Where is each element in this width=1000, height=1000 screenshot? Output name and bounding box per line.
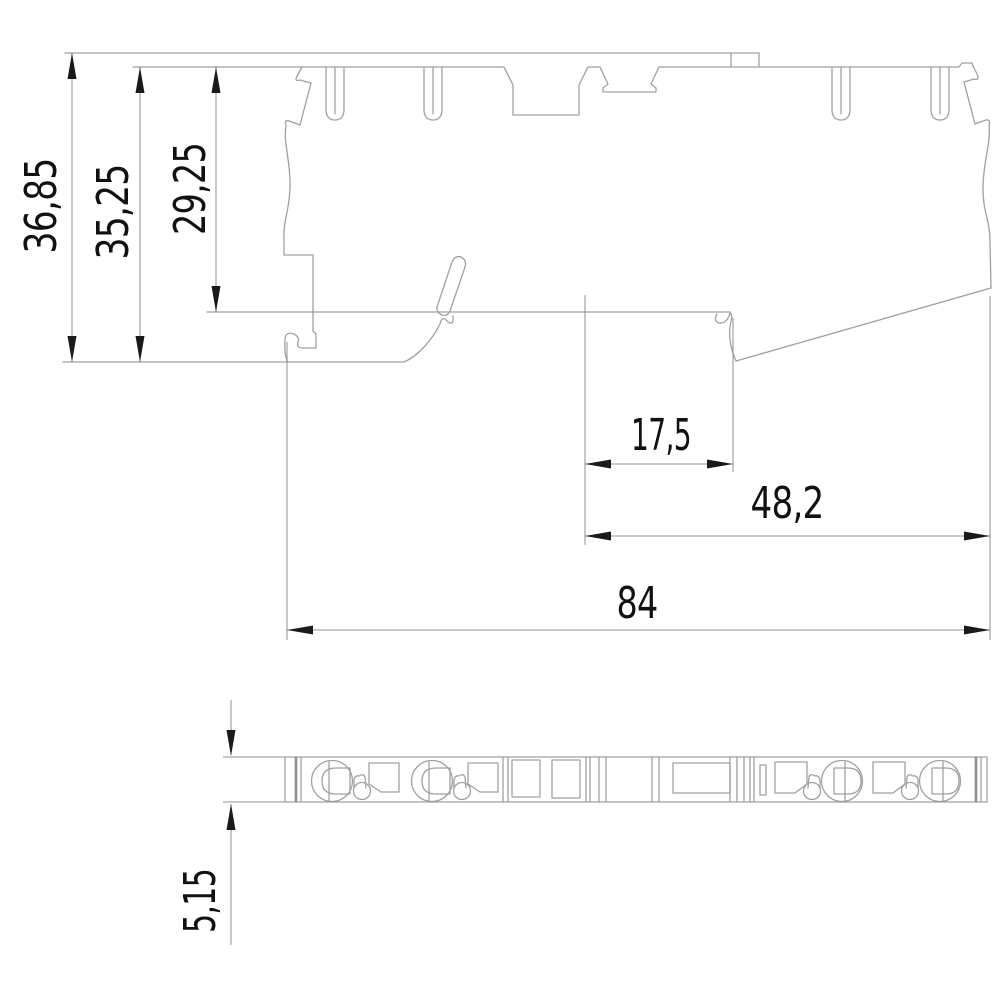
dimension-label-5-15: 5,15 [175, 869, 226, 933]
strip-socket-unit-mirrored [873, 761, 961, 802]
profile-right-edge [964, 66, 991, 288]
dimension-84: 84 [287, 342, 990, 640]
dimension-label-17-5: 17,5 [631, 410, 691, 461]
profile-diagonal-bottom [715, 288, 991, 361]
dimension-label-35-25: 35,25 [88, 165, 139, 260]
strip-socket-unit-mirrored [775, 761, 863, 802]
dimension-17-5: 17,5 [585, 295, 733, 545]
profile-left-edge [284, 67, 316, 362]
dimension-36-85: 36,85 [16, 53, 77, 362]
dimension-label-36-85: 36,85 [16, 159, 67, 254]
strip-outline [285, 757, 987, 802]
profile-top-slots [326, 67, 949, 120]
profile-top-edge [133, 63, 973, 115]
dimension-35-25: 35,25 [88, 67, 145, 362]
dimension-label-48-2: 48,2 [751, 478, 824, 529]
strip-middle-windows [512, 760, 766, 798]
strip-socket-unit [312, 761, 400, 802]
strip-dividers [301, 757, 981, 802]
technical-drawing-page: 36,85 35,25 29,25 17,5 48,2 84 [0, 0, 1000, 1000]
dimension-29-25: 29,25 [165, 67, 221, 312]
dimension-5-15: 5,15 [175, 700, 285, 945]
dimension-label-29-25: 29,25 [165, 143, 216, 235]
profile-tilted-slot [437, 257, 466, 316]
dimension-label-84: 84 [617, 578, 658, 629]
bottom-view [285, 757, 987, 802]
strip-socket-unit [412, 761, 499, 802]
technical-drawing-canvas: 36,85 35,25 29,25 17,5 48,2 84 [0, 0, 1000, 1000]
strip-thick-dividers [296, 757, 976, 802]
profile-cover-top-edge [65, 53, 759, 66]
profile-bottom-edge [63, 316, 453, 362]
